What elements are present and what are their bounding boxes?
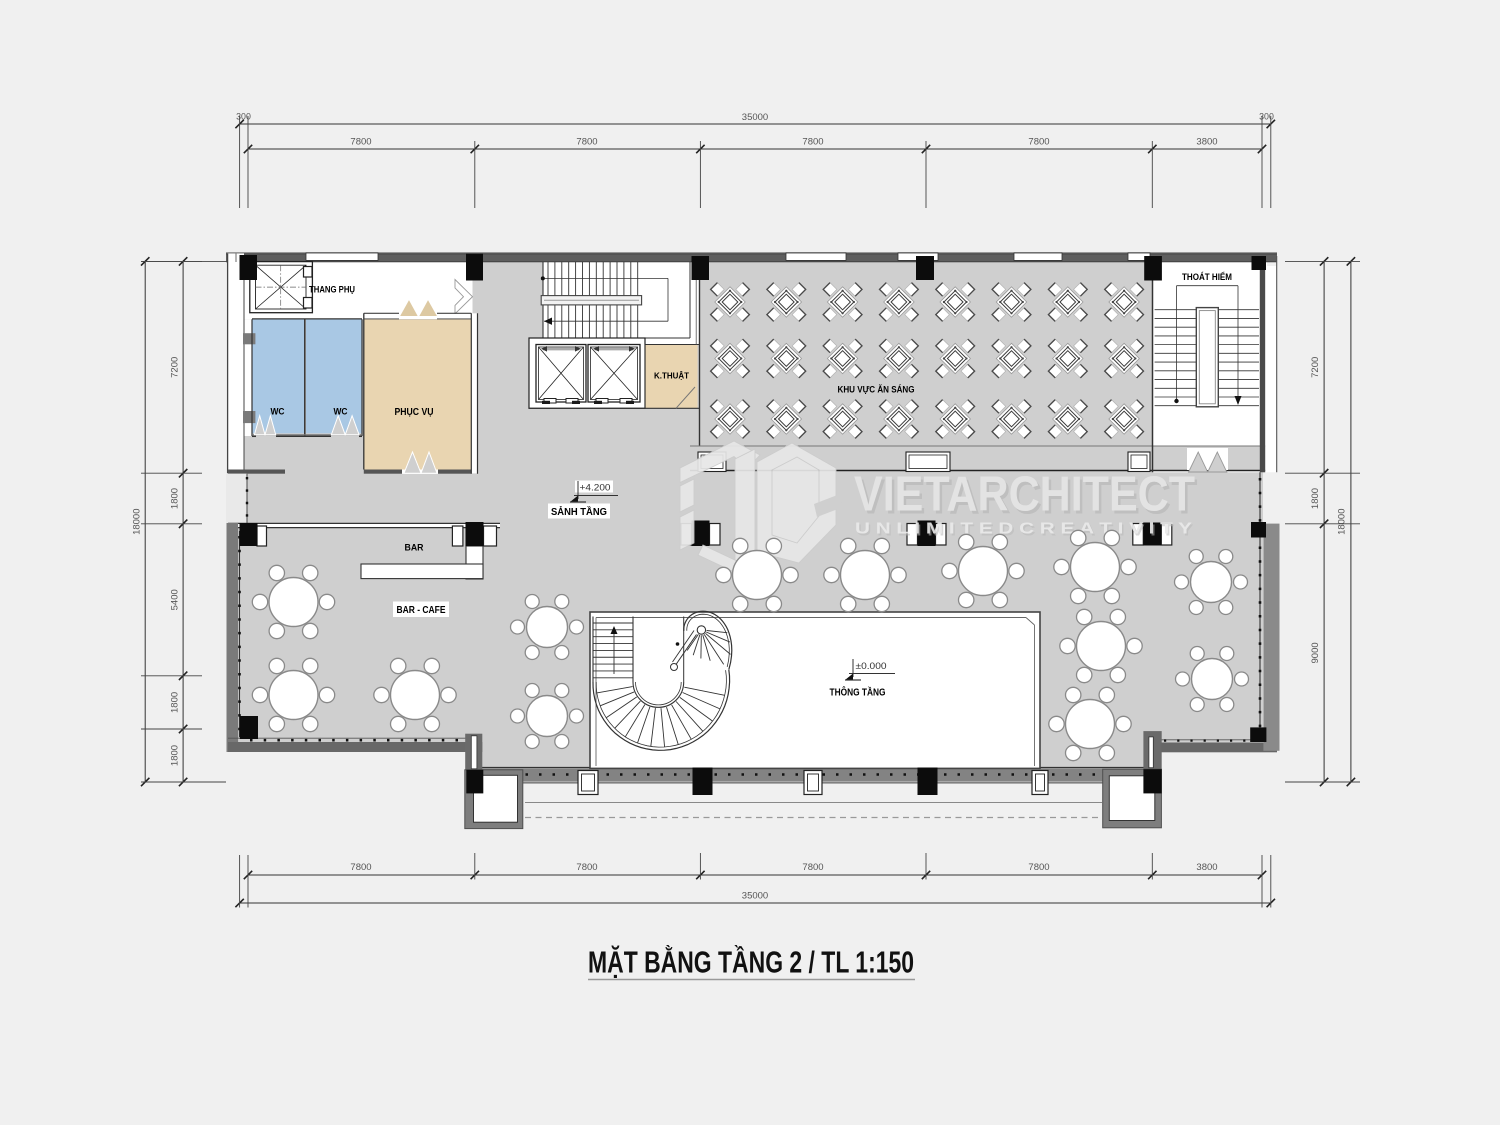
svg-text:PHỤC VỤ: PHỤC VỤ (395, 406, 434, 418)
svg-text:THANG PHỤ: THANG PHỤ (309, 285, 355, 295)
svg-text:1800: 1800 (170, 488, 181, 509)
svg-text:3800: 3800 (1196, 137, 1217, 148)
svg-text:7800: 7800 (802, 862, 823, 873)
svg-text:WC: WC (271, 407, 285, 418)
svg-text:7800: 7800 (1028, 862, 1049, 873)
svg-text:300: 300 (236, 112, 251, 122)
svg-text:+4.200: +4.200 (580, 483, 611, 493)
svg-text:7800: 7800 (576, 862, 597, 873)
svg-text:35000: 35000 (742, 112, 768, 123)
svg-text:7800: 7800 (350, 862, 371, 873)
svg-text:U N L I M I T E D C R E A T: U N L I M I T E D C R E A T I V I T Y (855, 521, 1193, 538)
svg-text:1800: 1800 (1310, 488, 1321, 509)
svg-text:WC: WC (334, 407, 348, 418)
svg-text:MẶT BẰNG TẦNG 2 / TL 1:150: MẶT BẰNG TẦNG 2 / TL 1:150 (588, 945, 914, 980)
svg-text:THOÁT HIỂM: THOÁT HIỂM (1182, 271, 1232, 282)
svg-text:3800: 3800 (1196, 862, 1217, 873)
svg-text:1800: 1800 (170, 692, 181, 713)
svg-text:7200: 7200 (1310, 357, 1321, 378)
svg-text:±0.000: ±0.000 (856, 661, 887, 671)
svg-text:BAR - CAFE: BAR - CAFE (397, 605, 446, 616)
svg-text:K.THUẬT: K.THUẬT (654, 370, 690, 381)
svg-text:7800: 7800 (1028, 137, 1049, 148)
svg-text:7800: 7800 (350, 137, 371, 148)
svg-text:SẢNH TẦNG: SẢNH TẦNG (551, 505, 607, 518)
svg-text:7800: 7800 (802, 137, 823, 148)
svg-text:9000: 9000 (1310, 642, 1321, 663)
svg-text:7200: 7200 (170, 357, 181, 378)
svg-text:300: 300 (1259, 112, 1274, 122)
svg-text:7800: 7800 (576, 137, 597, 148)
svg-text:5400: 5400 (170, 589, 181, 610)
svg-text:KHU VỰC ĂN SÁNG: KHU VỰC ĂN SÁNG (838, 384, 915, 395)
svg-text:THÔNG TẦNG: THÔNG TẦNG (830, 686, 886, 699)
svg-text:18000: 18000 (132, 508, 143, 534)
svg-text:BAR: BAR (405, 543, 425, 553)
svg-text:VIETARCHITECT: VIETARCHITECT (854, 468, 1195, 522)
svg-text:1800: 1800 (170, 745, 181, 766)
svg-text:35000: 35000 (742, 891, 768, 902)
svg-text:18000: 18000 (1337, 508, 1348, 534)
